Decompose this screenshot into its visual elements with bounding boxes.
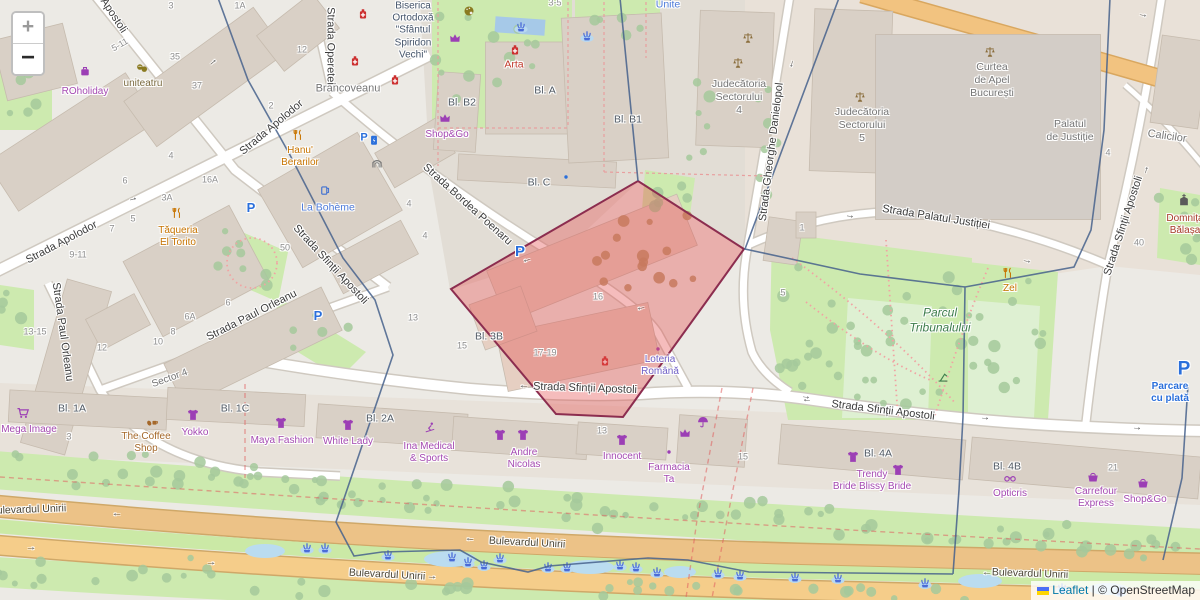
tree (636, 25, 643, 32)
dot-purple-icon (667, 450, 670, 453)
tree (127, 451, 136, 460)
tree (281, 475, 289, 483)
tree (250, 586, 260, 596)
tree (649, 502, 658, 511)
tree (976, 313, 984, 321)
tree (1105, 544, 1117, 556)
tree (862, 377, 869, 384)
tree (531, 40, 540, 49)
tree (452, 94, 461, 103)
tree (15, 312, 27, 324)
tree (222, 228, 228, 234)
tree (765, 86, 772, 93)
tree (827, 322, 838, 333)
tree (162, 573, 172, 583)
tree (854, 393, 861, 400)
dot-blue-icon (564, 175, 567, 178)
tree (900, 317, 908, 325)
tree (763, 118, 774, 129)
tree (150, 465, 162, 477)
tree (1146, 534, 1156, 544)
tree (793, 359, 801, 367)
tree (810, 347, 822, 359)
tree (649, 582, 656, 589)
tree (682, 514, 688, 520)
tree (318, 585, 330, 597)
tree (570, 499, 582, 511)
tree (297, 578, 305, 586)
tree (696, 110, 702, 116)
building (561, 13, 668, 163)
tree (984, 538, 994, 548)
building (796, 212, 816, 238)
tree (880, 400, 887, 407)
tree (808, 584, 818, 594)
tree (35, 557, 46, 568)
tree (261, 279, 273, 291)
palette-icon (464, 6, 473, 15)
tree (1010, 531, 1022, 543)
tree (102, 479, 110, 487)
tree (430, 54, 441, 65)
tree (805, 340, 813, 348)
tree (826, 360, 833, 367)
tree (866, 587, 876, 597)
tree (405, 578, 417, 590)
tree (902, 292, 911, 301)
tree (969, 362, 977, 370)
tree (492, 77, 502, 87)
tree (1191, 198, 1199, 206)
tree (145, 476, 155, 486)
ukraine-flag-icon (1037, 587, 1049, 595)
tree (824, 504, 834, 514)
tree (213, 261, 222, 270)
tree (1154, 193, 1164, 203)
tree (36, 574, 46, 584)
forkknife-icon (173, 208, 179, 218)
tree (529, 63, 535, 69)
tree (686, 155, 692, 161)
tree (503, 481, 515, 493)
tree (254, 472, 263, 481)
tree (664, 586, 674, 596)
attribution-bar: Leaflet | © OpenStreetMap (1031, 581, 1200, 600)
pharmacy-icon (352, 56, 358, 65)
tree (250, 463, 258, 471)
building (676, 415, 747, 468)
attribution-separator: | (1088, 583, 1098, 597)
tree (441, 479, 453, 491)
zoom-control: + − (11, 11, 45, 76)
tree (461, 577, 473, 589)
tree (968, 336, 978, 346)
tree (999, 382, 1010, 393)
openstreetmap-link[interactable]: © OpenStreetMap (1098, 583, 1195, 597)
tree (7, 110, 13, 116)
tree (834, 372, 843, 381)
tree (833, 529, 845, 541)
tree (704, 123, 710, 129)
tree (692, 582, 700, 590)
tree (840, 586, 852, 598)
tree (236, 248, 245, 257)
tree (677, 181, 686, 190)
tree (316, 496, 326, 506)
tree (12, 580, 18, 586)
tree (488, 31, 500, 43)
tree (870, 377, 877, 384)
tree (633, 586, 642, 595)
luggage-icon (81, 68, 88, 76)
tree (344, 323, 353, 332)
tree (828, 299, 836, 307)
tree (1140, 554, 1147, 561)
tree (1025, 278, 1031, 284)
zoom-out-button[interactable]: − (13, 44, 43, 74)
tree (1008, 297, 1017, 306)
tree (316, 475, 327, 486)
tree (207, 570, 216, 579)
tree (633, 577, 643, 587)
tree (777, 290, 789, 302)
tree (30, 582, 37, 589)
forkknife-icon (294, 130, 300, 140)
tree (194, 456, 205, 467)
tree (731, 509, 741, 519)
tree (118, 469, 129, 480)
tree (697, 501, 708, 512)
tree (1013, 377, 1020, 384)
tree (773, 514, 784, 525)
tree (239, 265, 246, 272)
tree (627, 579, 633, 585)
tree (818, 511, 824, 517)
tree (3, 290, 10, 297)
tree (730, 584, 741, 595)
tree (754, 94, 762, 102)
tree (378, 482, 385, 489)
tree (496, 501, 504, 509)
building (876, 35, 1101, 220)
tree (761, 145, 769, 153)
tree (716, 510, 725, 519)
tree (138, 565, 148, 575)
tree (1062, 520, 1071, 529)
tree (524, 39, 531, 46)
tree (943, 271, 955, 283)
tree (997, 526, 1004, 533)
tree (181, 573, 187, 579)
tree (30, 98, 41, 109)
tree (142, 451, 149, 458)
tree (936, 388, 943, 395)
tree (772, 139, 781, 148)
tree (781, 359, 792, 370)
map[interactable]: ApostoliStrada ApolodorStrada ApolodorSt… (0, 0, 1200, 600)
tree (317, 327, 327, 337)
tree (208, 474, 215, 481)
tree (423, 495, 430, 502)
charge-icon (371, 136, 377, 145)
tree (682, 193, 692, 203)
tree (260, 269, 271, 280)
tree (23, 107, 32, 116)
tree (289, 484, 300, 495)
tree (289, 326, 297, 334)
building (433, 72, 480, 153)
tree (12, 450, 20, 458)
tree (187, 555, 193, 561)
tree (861, 524, 871, 534)
tree (126, 570, 138, 582)
tree (1186, 254, 1197, 265)
tree (435, 12, 445, 22)
tree (509, 495, 521, 507)
tree (295, 592, 303, 600)
tree (1076, 546, 1088, 558)
tree (804, 507, 813, 516)
tree (1180, 211, 1189, 220)
tree (312, 312, 318, 318)
tree (233, 476, 243, 486)
tree (919, 388, 926, 395)
leaflet-link[interactable]: Leaflet (1052, 583, 1088, 597)
tree (592, 523, 603, 534)
tree (438, 70, 444, 76)
tree (67, 469, 78, 480)
tree (1039, 330, 1046, 337)
tree (744, 497, 756, 509)
tree (353, 498, 362, 507)
tree (1180, 243, 1191, 254)
tree (444, 582, 456, 594)
tree (1171, 542, 1181, 552)
tree (931, 584, 942, 595)
tree (700, 148, 707, 155)
tree (247, 473, 254, 480)
tree (988, 340, 1000, 352)
tree (463, 70, 475, 82)
tree (91, 577, 99, 585)
tree (703, 90, 715, 102)
tree (900, 398, 912, 410)
tree (563, 494, 571, 502)
pharmacy-icon (360, 9, 366, 18)
tree (1043, 528, 1055, 540)
tree (856, 583, 865, 592)
tree (756, 174, 764, 182)
tree (757, 496, 767, 506)
tree (597, 16, 603, 22)
tree (938, 306, 947, 315)
tree (798, 382, 806, 390)
tree (846, 321, 855, 330)
tree (1035, 540, 1046, 551)
tree (693, 78, 701, 86)
tree (988, 362, 1000, 374)
map-canvas (0, 0, 1200, 600)
zoom-in-button[interactable]: + (13, 13, 43, 44)
tree (605, 584, 613, 592)
tree (412, 479, 422, 489)
tree (1031, 329, 1038, 336)
tree (348, 490, 356, 498)
tree (424, 507, 431, 514)
tree (1035, 338, 1046, 349)
tree (290, 345, 296, 351)
tree (89, 451, 99, 461)
